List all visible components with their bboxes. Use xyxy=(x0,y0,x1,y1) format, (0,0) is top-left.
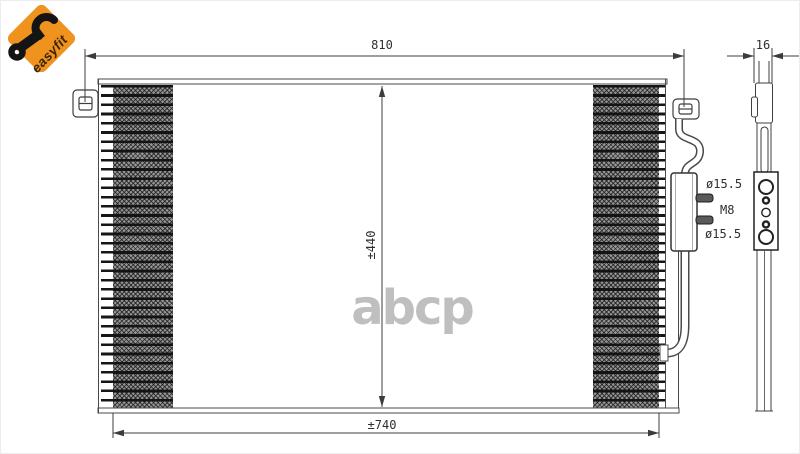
core-fins-right xyxy=(593,85,659,408)
watermark: abcp xyxy=(337,284,487,332)
technical-drawing-canvas: 810 ±440 ±740 16 ø15.5 M8 ø15.5 easyfit … xyxy=(0,0,800,454)
bolt-hole-3 xyxy=(763,222,769,228)
dim-label-upper-port: ø15.5 xyxy=(706,177,742,191)
port-circle-upper xyxy=(759,180,773,194)
easyfit-badge: easyfit xyxy=(1,1,91,91)
mount-bracket-top-right xyxy=(673,99,699,119)
core-tube-ends-right xyxy=(659,85,666,408)
dimension-440 xyxy=(379,86,385,407)
inlet-pipe xyxy=(679,119,700,174)
stud-lower xyxy=(696,216,713,224)
bolt-hole-1 xyxy=(763,198,769,204)
port-circle-lower xyxy=(759,230,773,244)
core-fins-left xyxy=(113,85,173,408)
core-tube-ends-left xyxy=(101,85,113,408)
dim-label-core-width: ±740 xyxy=(357,418,407,432)
side-view-profile xyxy=(752,61,774,411)
stud-upper xyxy=(696,194,713,202)
mount-bracket-top-left xyxy=(73,90,98,117)
side-ports-block xyxy=(754,172,778,250)
dimension-16 xyxy=(727,48,799,83)
dim-label-thread: M8 xyxy=(720,203,734,217)
bolt-hole-2 xyxy=(762,208,770,216)
dim-label-overall-width: 810 xyxy=(358,38,406,52)
front-view-outline xyxy=(98,79,679,413)
dim-label-lower-port: ø15.5 xyxy=(705,227,741,241)
dim-label-depth: 16 xyxy=(752,38,774,52)
dim-label-core-height: ±440 xyxy=(364,220,378,270)
